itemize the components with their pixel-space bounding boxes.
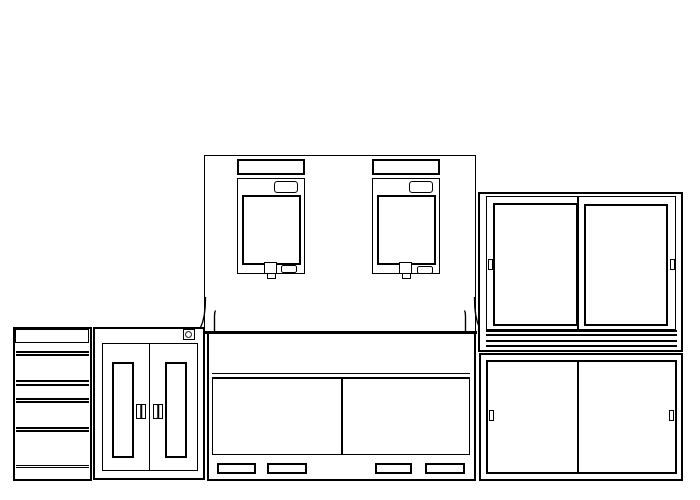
vent-slot	[375, 463, 412, 474]
sliding-door-handle-left	[488, 259, 493, 270]
vent-slot	[425, 463, 465, 474]
sliding-door-handle-right	[669, 410, 674, 421]
drawer-divider	[16, 465, 89, 468]
vent-slot	[281, 265, 297, 273]
knob	[399, 262, 412, 274]
drawer-divider	[16, 380, 89, 386]
elevation-drawing	[0, 0, 700, 500]
upper-cabinet-rail	[486, 330, 677, 336]
module-header	[372, 159, 440, 175]
door-division	[341, 379, 343, 454]
drawer-divider	[16, 398, 89, 403]
double-door-cabinet	[93, 327, 205, 480]
sliding-door-division	[577, 362, 579, 472]
upper-cabinet-rail	[486, 340, 677, 347]
vent-slot	[417, 266, 433, 274]
sliding-door-handle-left	[489, 410, 494, 421]
module-header	[237, 159, 305, 175]
sliding-door-handle-right	[670, 259, 675, 270]
door-panel-right	[165, 362, 187, 458]
control-pad	[274, 181, 298, 193]
control-pad	[409, 181, 433, 193]
module-window	[377, 195, 436, 265]
cabinet-doors	[212, 378, 470, 455]
drawer-pedestal	[13, 327, 92, 481]
drawer-divider	[16, 351, 89, 356]
lower-cabinet-doors	[486, 360, 677, 474]
knob	[264, 262, 277, 274]
lock-circle	[185, 331, 192, 338]
sliding-door-left	[493, 203, 578, 326]
sliding-door-right	[584, 204, 668, 326]
door-handle-left	[136, 404, 146, 419]
module-window	[242, 195, 301, 265]
door-handle-right	[153, 404, 163, 419]
vent-slot	[217, 463, 256, 474]
vent-slot	[267, 463, 307, 474]
sliding-track-division	[577, 196, 579, 330]
drawer-divider	[16, 427, 89, 432]
door-panel-left	[112, 362, 134, 458]
drawer-top-face	[15, 329, 89, 343]
lock-icon	[183, 329, 195, 340]
